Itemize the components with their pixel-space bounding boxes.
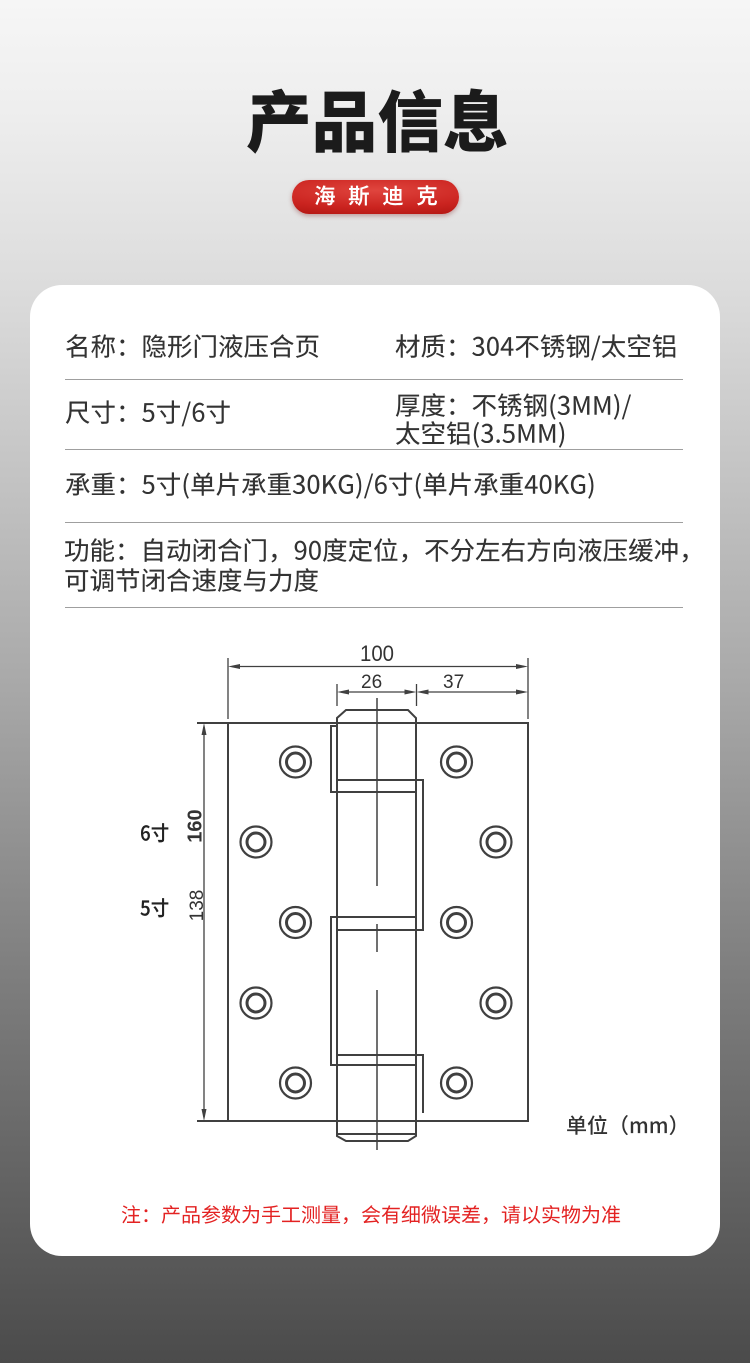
svg-text:26: 26	[361, 672, 382, 693]
svg-text:37: 37	[443, 672, 464, 693]
svg-text:138: 138	[187, 890, 208, 922]
svg-text:160: 160	[185, 809, 207, 842]
svg-text:100: 100	[360, 641, 394, 666]
